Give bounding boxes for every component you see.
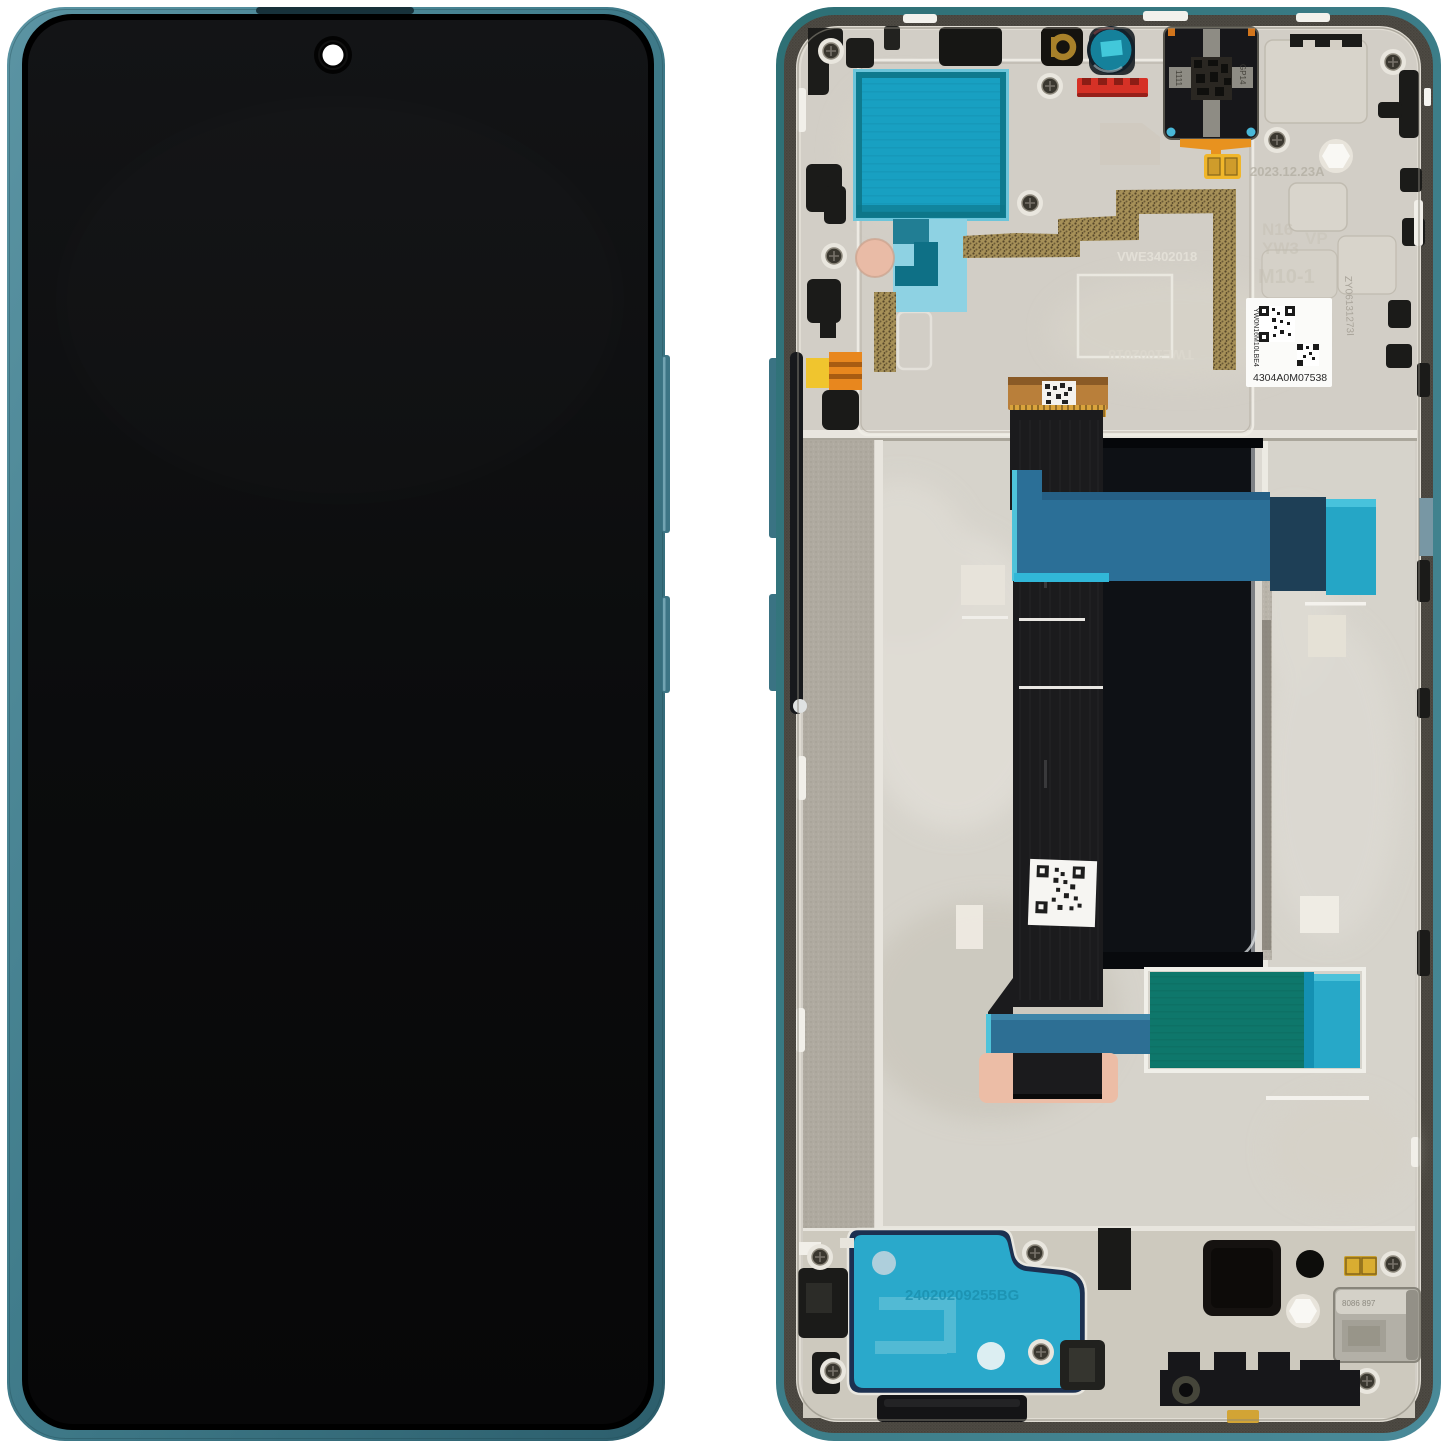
svg-text:M10-1: M10-1: [1258, 266, 1315, 288]
svg-text:2023.12.23A: 2023.12.23A: [1250, 164, 1325, 179]
svg-text:4304A0M07538: 4304A0M07538: [1253, 372, 1327, 384]
svg-text:GP14: GP14: [1238, 64, 1247, 85]
svg-text:ZY06131273I: ZY06131273I: [1342, 276, 1355, 336]
svg-text:VWE3402018: VWE3402018: [1117, 249, 1197, 264]
svg-text:YW3: YW3: [1262, 239, 1299, 258]
svg-text:YW0N16M10LBE4: YW0N16M10LBE4: [1252, 308, 1259, 367]
svg-text:N16: N16: [1262, 220, 1293, 239]
svg-text:VP: VP: [1305, 229, 1328, 248]
svg-text:24020209255BG: 24020209255BG: [905, 1287, 1019, 1304]
svg-text:TWE1002018: TWE1002018: [1108, 347, 1194, 363]
svg-text:8086 897: 8086 897: [1342, 1299, 1376, 1308]
svg-text:1111: 1111: [1174, 70, 1183, 87]
